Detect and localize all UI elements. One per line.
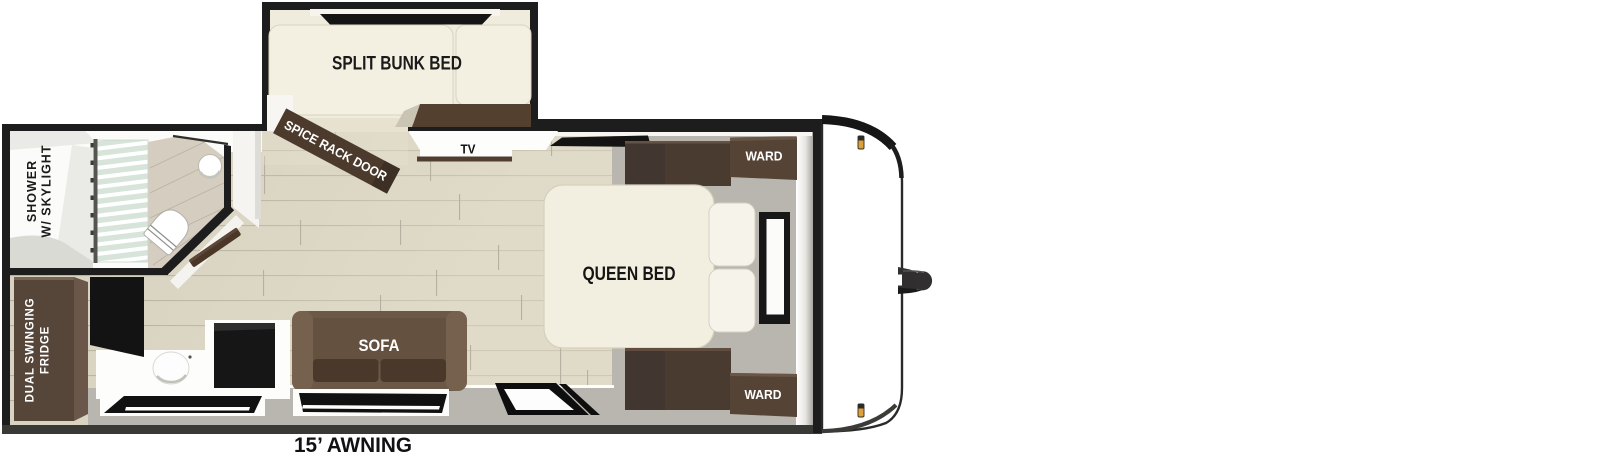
svg-text:WARD: WARD (745, 387, 782, 402)
svg-text:W/ SKYLIGHT: W/ SKYLIGHT (40, 145, 54, 238)
svg-text:15’ AWNING: 15’ AWNING (294, 434, 412, 453)
svg-text:TV: TV (461, 143, 477, 157)
svg-text:SOFA: SOFA (359, 336, 400, 355)
svg-text:QUEEN BED: QUEEN BED (583, 264, 676, 285)
svg-text:SHOWER: SHOWER (25, 160, 39, 222)
svg-text:FRIDGE: FRIDGE (40, 326, 52, 374)
svg-text:DUAL SWINGING: DUAL SWINGING (25, 298, 37, 403)
svg-text:WARD: WARD (746, 149, 783, 164)
svg-text:SPLIT BUNK BED: SPLIT BUNK BED (332, 54, 462, 75)
